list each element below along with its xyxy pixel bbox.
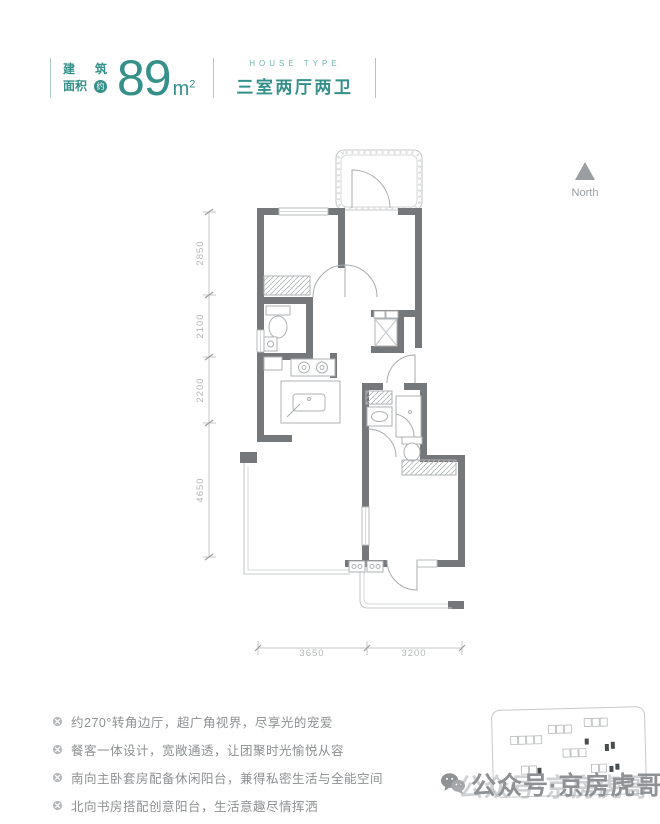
dim-bottom-1: 3650 <box>299 648 324 659</box>
suite-door-arc <box>387 355 415 383</box>
kitchen <box>264 357 340 423</box>
entry-porch <box>336 150 422 210</box>
dimension-bottom: 3650 3200 <box>255 641 465 659</box>
walls <box>240 208 465 609</box>
feature-text: 餐客一体设计，宽敞通透，让团聚时光愉悦从容 <box>71 740 344 759</box>
dimension-left: 2850 2100 2200 4650 <box>195 209 216 560</box>
wechat-icon <box>440 772 466 796</box>
feature-text: 约270°转角边厅，超广角视界，尽享光的宠爱 <box>71 712 333 731</box>
bay-window <box>244 463 350 574</box>
dim-bottom-2: 3200 <box>401 648 426 659</box>
feature-item: 北向书房搭配创意阳台，生活意趣尽情挥洒 <box>52 796 383 815</box>
bedroom-south-window <box>417 560 437 567</box>
master-bathroom <box>366 391 422 461</box>
shower <box>396 396 421 437</box>
north-label: North <box>572 187 599 199</box>
dim-left-3: 2200 <box>195 377 206 402</box>
dim-left-1: 2850 <box>195 240 206 265</box>
feature-text: 北向书房搭配创意阳台，生活意趣尽情挥洒 <box>71 796 318 815</box>
study-door-arc <box>313 265 345 297</box>
toilet-bowl <box>269 316 287 338</box>
bedroom2-door-arc <box>345 265 377 297</box>
north-triangle-icon <box>575 162 595 180</box>
study-closet <box>264 276 310 295</box>
feature-text: 南向主卧套房配备休闲阳台，兼得私密生活与全能空间 <box>71 768 383 787</box>
bathroom-1 <box>264 306 290 351</box>
dim-left-4: 4650 <box>195 477 206 502</box>
feature-item: 约270°转角边厅，超广角视界，尽享光的宠爱 <box>52 712 383 731</box>
elevator-shaft <box>374 311 398 346</box>
north-arrow: North <box>572 162 599 199</box>
entry-door-arc <box>352 170 390 208</box>
kitchen-cabinet <box>264 357 282 370</box>
stove <box>291 359 335 376</box>
kitchen-sink <box>293 394 325 411</box>
watermark-text: 公众号·京房虎哥 <box>471 766 660 802</box>
star-bullet-icon <box>52 772 63 783</box>
watermark: 公众号·京房虎哥 <box>440 766 660 802</box>
star-bullet-icon <box>52 744 63 755</box>
bath-closet <box>366 391 392 404</box>
master-bath-door-arc <box>368 429 396 457</box>
dim-left-2: 2100 <box>195 313 206 338</box>
balcony-door-arc <box>387 560 417 590</box>
floor-plan: North 2850 2100 2200 4650 3650 3200 <box>0 0 660 808</box>
master-bedroom-closet <box>402 460 456 475</box>
toilet-bowl <box>404 443 420 461</box>
feature-item: 南向主卧套房配备休闲阳台，兼得私密生活与全能空间 <box>52 768 383 787</box>
toilet-tank <box>266 306 290 315</box>
star-bullet-icon <box>52 716 63 727</box>
star-bullet-icon <box>52 800 63 811</box>
floorplan-page: { "header": { "label_line1_a": "建", "lab… <box>0 0 660 808</box>
feature-item: 餐客一体设计，宽敞通透，让团聚时光愉悦从容 <box>52 740 383 759</box>
feature-list: 约270°转角边厅，超广角视界，尽享光的宠爱 餐客一体设计，宽敞通透，让团聚时光… <box>52 712 383 824</box>
